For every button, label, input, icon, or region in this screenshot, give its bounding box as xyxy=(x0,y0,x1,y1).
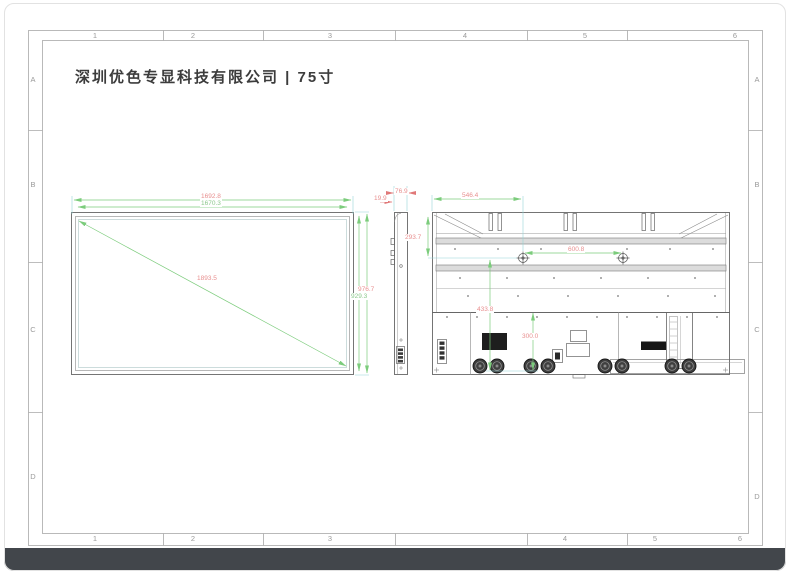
center-box-upper xyxy=(571,331,587,342)
grid-col-bot-5: 5 xyxy=(645,534,665,543)
back-view xyxy=(432,213,745,379)
dim-front-outer-width: 1692.8 xyxy=(200,193,222,200)
sheet-frame xyxy=(29,31,763,546)
company-title: 深圳优色专显科技有限公司 | 75寸 xyxy=(75,66,335,87)
handle-slots xyxy=(489,214,655,231)
diagonal-dimension-line xyxy=(79,221,346,366)
dim-side-thickness: 19.9 xyxy=(373,195,388,202)
grid-col-top-3: 3 xyxy=(320,31,340,40)
grid-col-bot-1: 1 xyxy=(85,534,105,543)
grid-row-right-c: C xyxy=(751,325,763,334)
dim-back-lower-span: 300.0 xyxy=(521,333,539,340)
grid-col-bot-2: 2 xyxy=(183,534,203,543)
side-connector-tabs xyxy=(391,239,395,265)
speaker-grille-left xyxy=(482,333,507,350)
grid-col-top-5: 5 xyxy=(575,31,595,40)
grid-col-bot-3: 3 xyxy=(320,534,340,543)
extension-lines xyxy=(72,186,538,375)
grid-row-left-a: A xyxy=(27,75,39,84)
grid-row-right-a: A xyxy=(751,75,763,84)
dim-back-vesa-spacing: 600.8 xyxy=(567,246,585,253)
window-bottom-bar xyxy=(4,548,786,571)
center-box-lower xyxy=(567,344,590,357)
dim-front-inner-height: 929.3 xyxy=(350,293,368,300)
dim-side-depth: 76.9 xyxy=(394,188,409,195)
grid-col-bot-6: 6 xyxy=(730,534,750,543)
dim-front-inner-width: 1670.3 xyxy=(200,200,222,207)
dim-back-vesa-to-bottom: 433.8 xyxy=(476,306,494,313)
grid-col-top-4: 4 xyxy=(455,31,475,40)
grid-col-bot-4: 4 xyxy=(555,534,575,543)
dim-front-outer-height: 976.7 xyxy=(357,286,375,293)
grid-row-right-b: B xyxy=(751,180,763,189)
mount-rail-lower xyxy=(436,265,726,271)
port-row-black xyxy=(641,342,666,351)
grid-row-right-d: D xyxy=(751,492,763,501)
grid-col-top-6: 6 xyxy=(725,31,745,40)
dim-front-diagonal: 1893.5 xyxy=(196,275,218,282)
vesa-holes xyxy=(517,252,630,265)
grid-row-left-c: C xyxy=(27,325,39,334)
grid-row-left-d: D xyxy=(27,472,39,481)
grid-row-left-b: B xyxy=(27,180,39,189)
grid-col-top-2: 2 xyxy=(183,31,203,40)
grid-col-top-1: 1 xyxy=(85,31,105,40)
dim-back-edge-to-vesa: 546.4 xyxy=(461,192,479,199)
mount-rail-upper xyxy=(436,238,726,244)
dim-back-top-to-vesa: 293.7 xyxy=(404,234,422,241)
